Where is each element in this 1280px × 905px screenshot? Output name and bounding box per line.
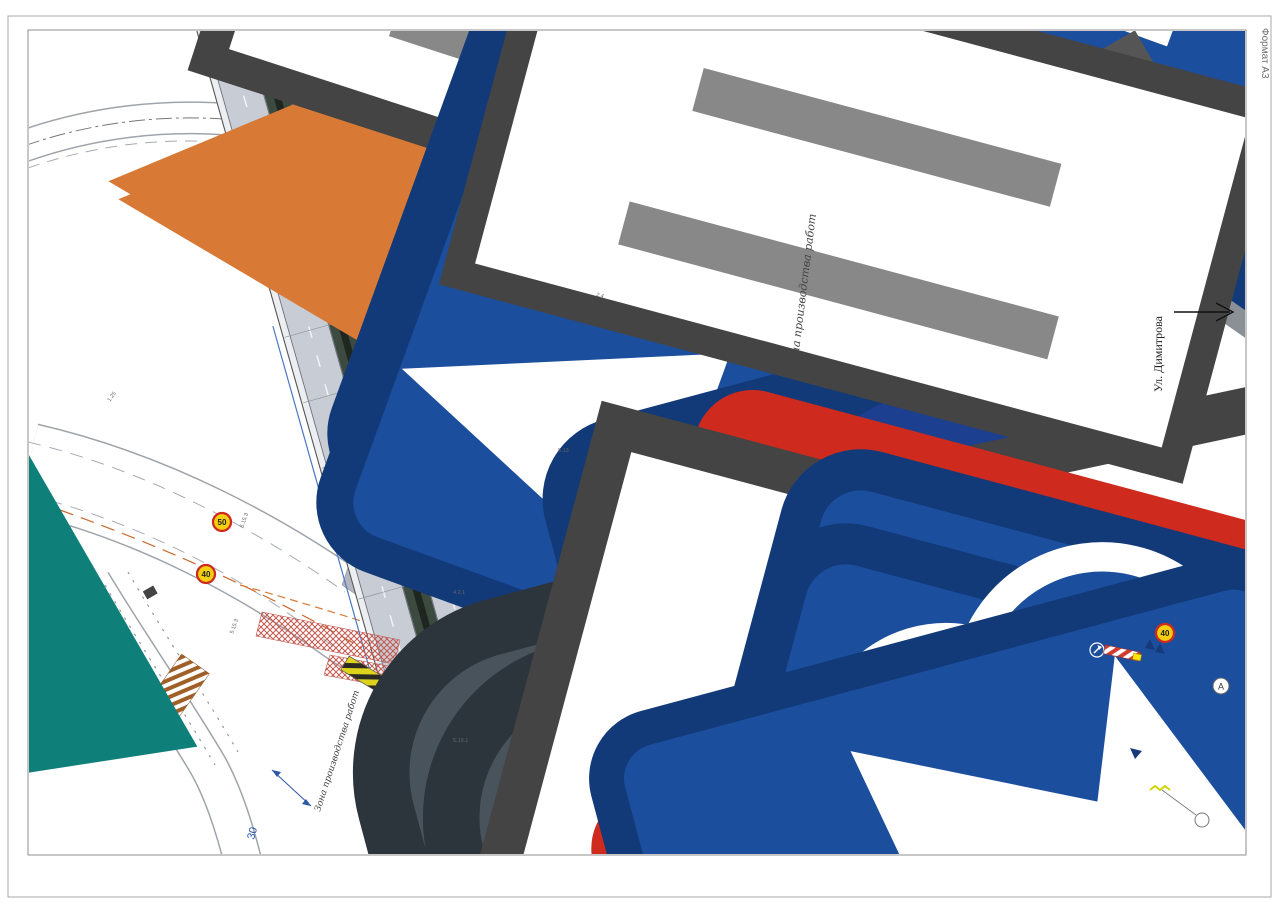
speed-limit-sign-40-right: 40	[1156, 624, 1174, 642]
sign-code: 8.13	[558, 448, 569, 454]
traffic-management-drawing-page: Формат А3	[0, 0, 1280, 905]
speed-limit-sign-50: 50	[213, 513, 231, 531]
speed-limit-value: 40	[202, 570, 211, 579]
speed-limit-sign-40: 40	[197, 565, 215, 583]
bus-point-marker: А	[1213, 678, 1229, 694]
bus-point-letter: А	[1218, 682, 1224, 692]
sign-code: 4.2.1	[453, 590, 465, 596]
detour-direction-sign	[1090, 643, 1104, 657]
scheme-canvas: Формат А3	[0, 0, 1280, 905]
lamp-panel	[1132, 653, 1141, 661]
format-label: Формат А3	[1259, 28, 1270, 79]
street-label: Ул. Димитрова	[1151, 315, 1165, 392]
speed-limit-value: 40	[1161, 629, 1170, 638]
speed-limit-value: 50	[218, 518, 227, 527]
sign-code: 5.19.1	[453, 738, 468, 744]
